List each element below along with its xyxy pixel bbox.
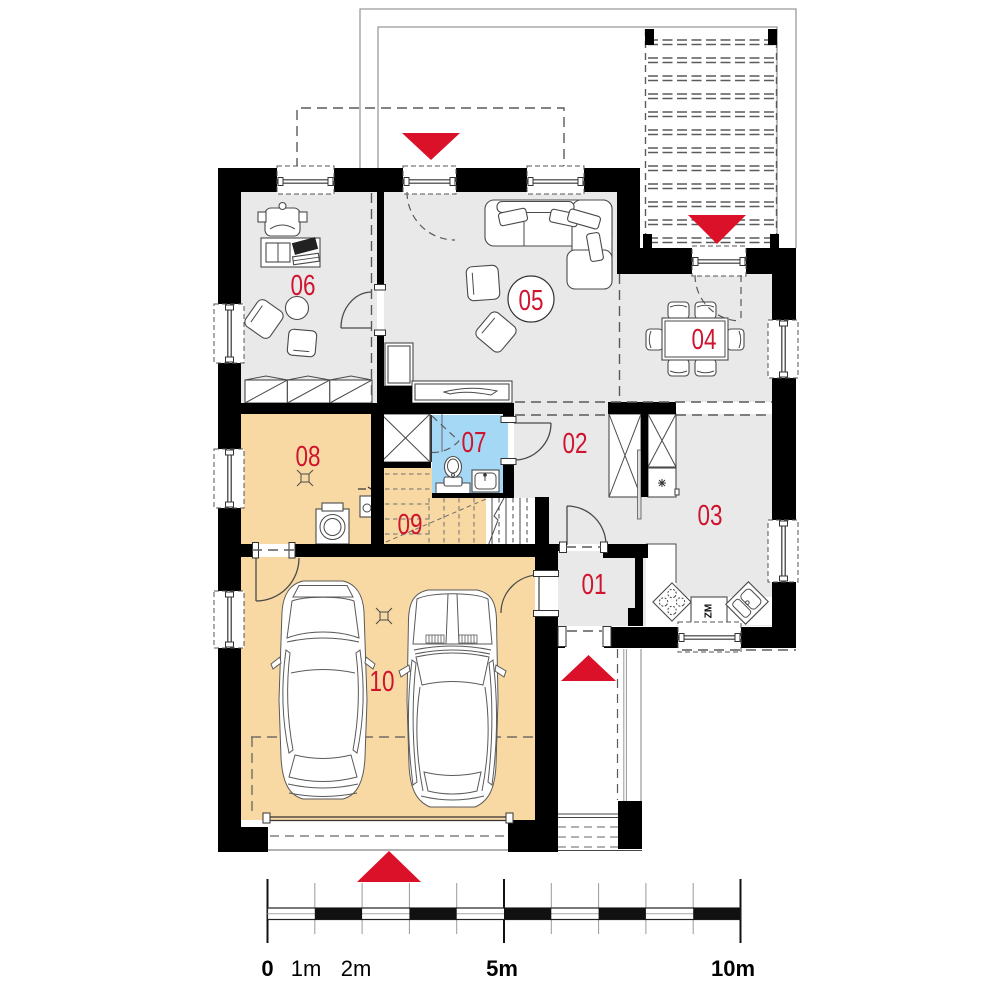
svg-text:1m: 1m <box>291 956 322 981</box>
svg-text:01: 01 <box>582 569 607 601</box>
svg-text:03: 03 <box>698 500 723 532</box>
svg-text:10: 10 <box>370 666 395 698</box>
svg-text:ZM: ZM <box>704 604 715 618</box>
svg-text:08: 08 <box>296 441 321 473</box>
svg-text:0: 0 <box>261 956 273 981</box>
svg-text:10m: 10m <box>711 956 755 981</box>
svg-text:06: 06 <box>291 270 316 302</box>
svg-text:2m: 2m <box>341 956 372 981</box>
svg-text:04: 04 <box>692 324 717 356</box>
svg-text:02: 02 <box>563 428 588 460</box>
svg-text:5m: 5m <box>486 956 518 981</box>
svg-text:05: 05 <box>519 285 544 317</box>
svg-text:09: 09 <box>398 509 423 541</box>
svg-text:07: 07 <box>462 427 487 459</box>
